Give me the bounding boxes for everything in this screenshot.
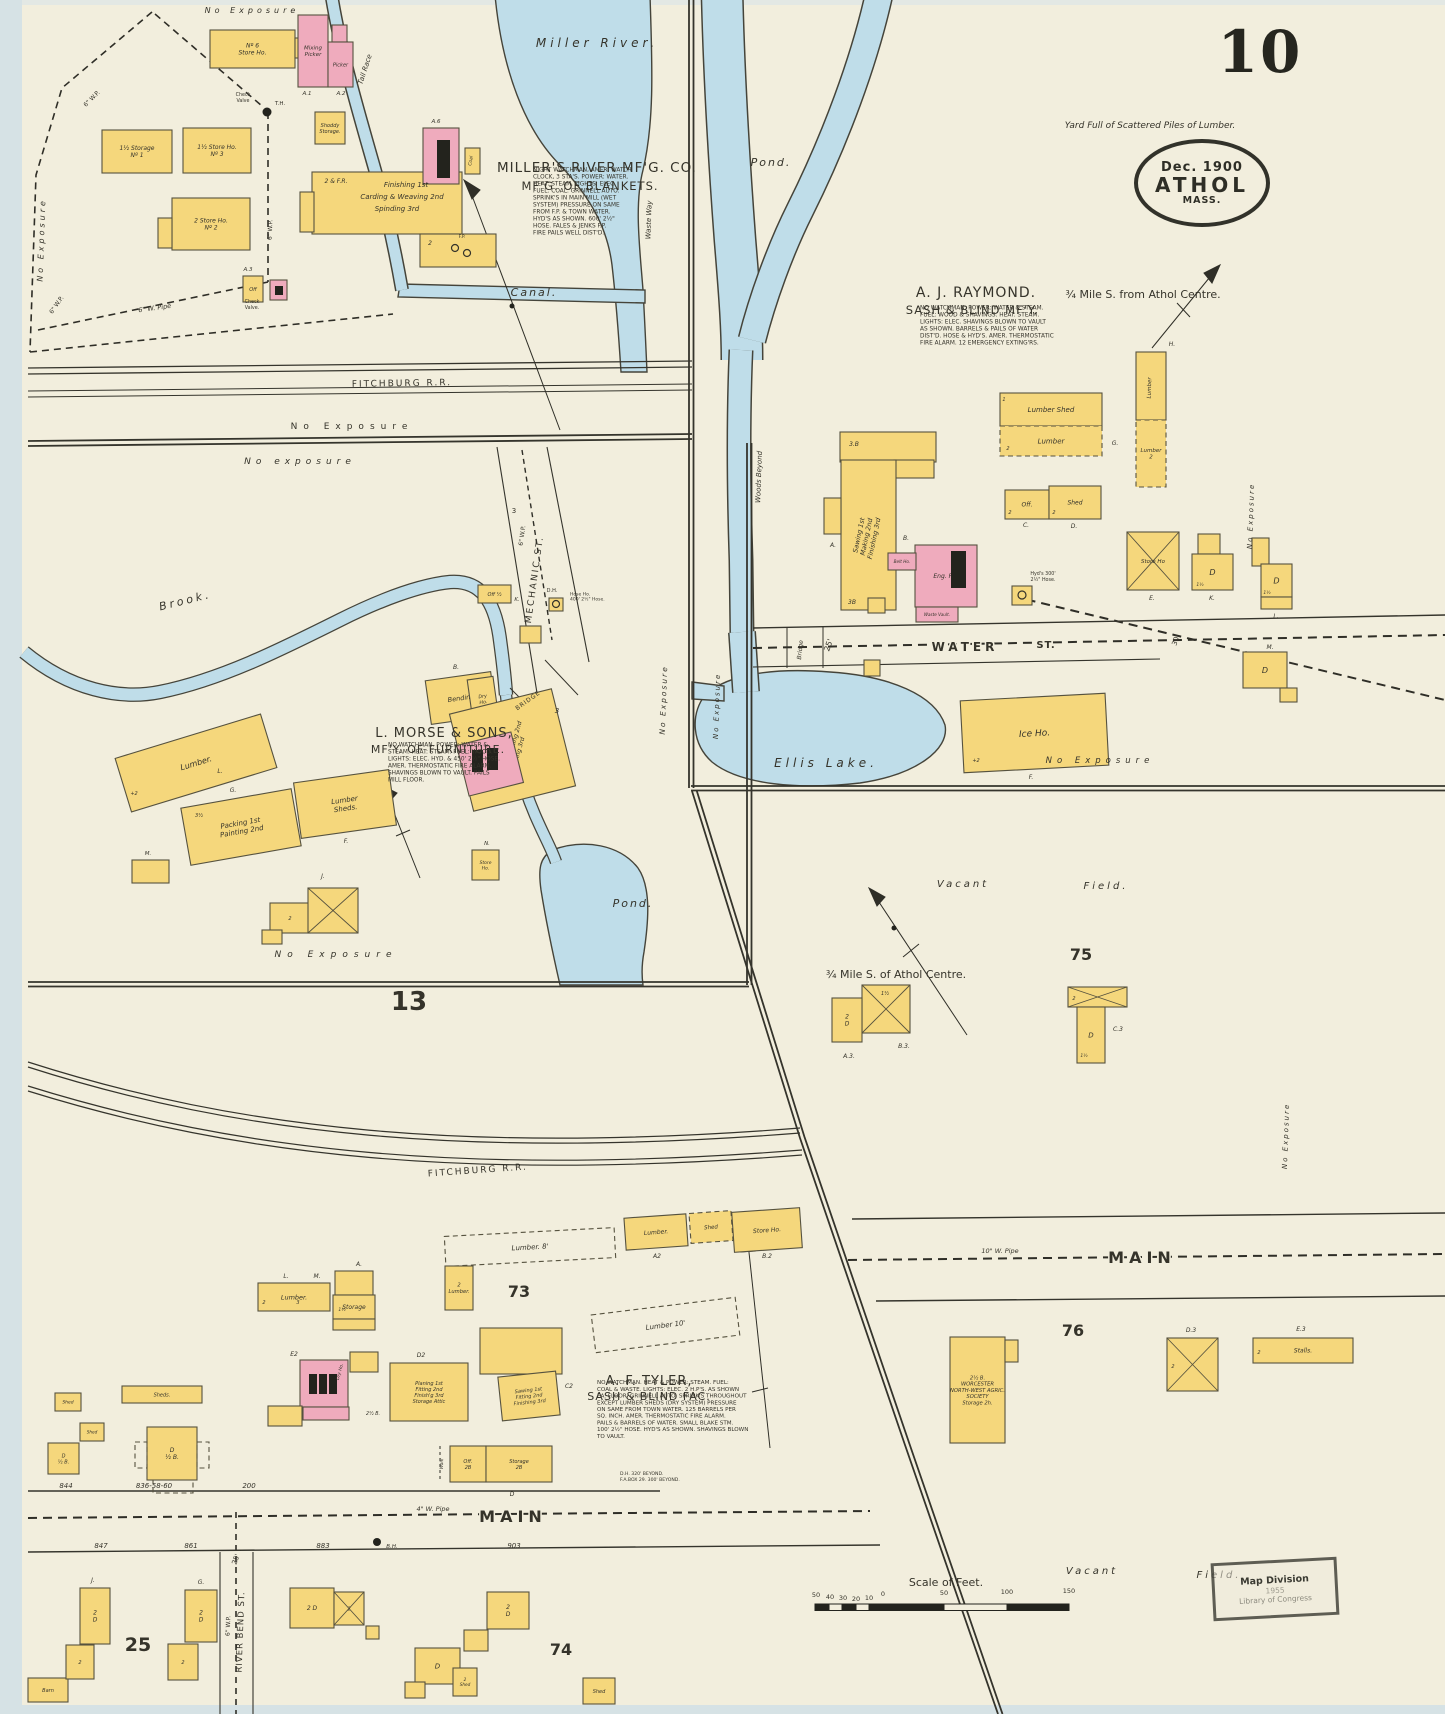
map-building <box>303 1407 349 1420</box>
map-label: 6" W.P. <box>48 295 65 316</box>
map-label: 13 <box>391 987 427 1017</box>
map-label: M. <box>145 851 152 857</box>
building-label: D <box>1209 568 1215 577</box>
scale-bar-segment <box>882 1604 944 1611</box>
utility-dot <box>892 926 897 931</box>
map-building: 2D <box>832 998 862 1042</box>
map-label: No Exposure <box>1046 756 1155 766</box>
map-building <box>268 1406 302 1426</box>
map-building: Storage2B <box>486 1446 552 1482</box>
map-label: 861 <box>184 1542 197 1550</box>
map-label: A.3 <box>242 267 253 273</box>
map-label: 2 <box>1052 510 1055 516</box>
map-label: WATER <box>932 640 999 654</box>
map-label: D. <box>1071 523 1078 530</box>
map-label: D.3 <box>1186 1327 1197 1334</box>
map-label: A.1 <box>301 91 311 97</box>
map-label: No exposure <box>244 457 356 467</box>
building-label: Storage <box>342 1304 366 1311</box>
map-building: Sheds. <box>122 1386 202 1403</box>
map-label: C. <box>1023 522 1029 529</box>
sheet-number: 10 <box>1205 18 1315 86</box>
river-west-branch <box>722 0 742 360</box>
river-east-branch <box>752 0 880 340</box>
map-label: 2 <box>1008 510 1011 516</box>
building-label: Barn <box>42 1688 54 1694</box>
map-label: M. <box>313 1273 320 1280</box>
map-label: G. <box>1112 440 1119 447</box>
map-building: 2 <box>66 1645 94 1679</box>
scale-of-feet: Scale of Feet.5040302010050100150 <box>812 1576 1075 1611</box>
map-label: A. <box>829 542 836 549</box>
building-label: Lumber. 8' <box>511 1242 548 1252</box>
map-label: 10" W. Pipe <box>981 1247 1018 1255</box>
building-interior-mark <box>951 551 966 588</box>
scale-tick: 150 <box>1063 1587 1075 1595</box>
map-label: CheckValve. <box>245 299 260 311</box>
map-label: Finishing 1st <box>384 181 429 189</box>
map-label: 76 <box>1062 1321 1084 1340</box>
utility-dot <box>510 304 515 309</box>
map-label: J. <box>320 873 325 880</box>
building-label: Off.2B <box>463 1459 472 1471</box>
map-building <box>1280 688 1297 702</box>
map-label: B. <box>903 535 909 542</box>
map-building <box>1005 1340 1018 1362</box>
building-label: Belt Ho. <box>894 559 911 564</box>
map-label: 25' <box>822 638 835 653</box>
map-building: 2 <box>168 1644 198 1680</box>
map-building <box>350 1352 378 1372</box>
map-label: Yard Full of Scattered Piles of Lumber. <box>1065 121 1235 131</box>
building-label: Shed <box>62 1400 73 1406</box>
map-building <box>1261 597 1292 609</box>
map-building <box>480 1328 562 1374</box>
map-building: 2Shed <box>453 1668 477 1696</box>
map-label: RIVER BEND ST. <box>235 1591 248 1673</box>
scale-bar-segment <box>829 1604 842 1611</box>
map-label: Carding & Weaving 2nd <box>360 193 444 201</box>
map-label: No Exposure <box>291 422 414 432</box>
map-label: L. <box>1273 613 1278 620</box>
map-building <box>333 1319 375 1330</box>
building-label: Planing 1stFitting 2ndFinish'g 3rdStorag… <box>413 1381 446 1405</box>
scale-tick: 40 <box>826 1593 834 1601</box>
map-label: Vacant <box>1066 1566 1118 1577</box>
map-label: B. <box>453 664 459 671</box>
map-label: Field. <box>1084 881 1129 892</box>
utility-dot <box>373 1538 381 1546</box>
map-label: 1½ <box>1196 581 1204 588</box>
map-label: Waste Way <box>644 200 653 240</box>
map-building: Lumber <box>1000 426 1102 456</box>
building-label: Picker <box>333 62 349 68</box>
map-building: Store Ho <box>1127 532 1179 590</box>
building-label: Off. <box>1022 502 1033 509</box>
building-label: Lumber <box>1038 437 1066 445</box>
map-label: E2 <box>290 1351 298 1358</box>
map-building: Sawing 1stFitting 2ndFinishing 3rd <box>498 1371 560 1421</box>
map-label: L. <box>283 1273 288 1280</box>
map-building: Picker <box>328 42 353 87</box>
map-label: J. <box>90 1577 95 1584</box>
building-label: 2 <box>347 1606 350 1612</box>
building-label: Shed <box>87 1429 98 1434</box>
map-building: 1½ Store Ho.Nº 3 <box>183 128 251 173</box>
map-building <box>868 598 885 613</box>
building-label: MixingPicker <box>304 46 323 59</box>
map-label: ¾ Mile S. of Athol Centre. <box>826 968 966 981</box>
map-building: Off ½ <box>478 585 511 603</box>
map-label: Miller River. <box>536 36 658 50</box>
map-label: Bridge <box>796 639 805 659</box>
map-building: D½ B. <box>147 1427 197 1480</box>
building-label: Lumber 10' <box>645 1319 686 1332</box>
map-label: Pond. <box>613 897 654 910</box>
map-label: No Exposure <box>1281 1103 1291 1170</box>
map-building: 2D <box>487 1592 529 1629</box>
scale-title: Scale of Feet. <box>909 1576 983 1589</box>
scale-tick: 10 <box>865 1594 873 1602</box>
stamp-city: ATHOL <box>1155 175 1249 195</box>
map-label: M. <box>1266 644 1273 651</box>
sanborn-map-page: 1½ StorageNº 11½ Store Ho.Nº 32 Store Ho… <box>0 0 1445 1714</box>
map-label: 2 <box>428 240 432 247</box>
building-label: Waste Vault. <box>924 612 950 617</box>
map-label: CheckValve <box>236 92 251 104</box>
map-building: Sawing 1stMaking 2ndFinishing 3rd <box>841 460 896 610</box>
map-label: Brook. <box>158 588 213 614</box>
map-label: 844 <box>59 1482 72 1490</box>
map-building <box>308 888 358 933</box>
map-building: Stalls. <box>1253 1338 1353 1363</box>
map-label: Pond. <box>751 156 792 169</box>
map-building <box>135 1442 147 1468</box>
map-label: Hose Ho.400' 2½" Hose. <box>570 591 605 602</box>
building-label: Shed <box>704 1224 719 1231</box>
scale-bar-segment <box>815 1604 829 1611</box>
map-label: F. <box>1029 774 1034 781</box>
map-building: Packing 1stPainting 2nd <box>181 789 301 866</box>
building-label: Shed <box>593 1689 606 1695</box>
scale-tick: 100 <box>1001 1588 1013 1596</box>
building-label: Lumber Shed <box>1028 406 1075 414</box>
map-label: 6" W.P. <box>82 89 101 108</box>
map-label: 3.B <box>849 441 859 448</box>
map-building: Storage <box>333 1295 375 1319</box>
map-label: 6" W.P. <box>267 220 275 241</box>
scale-tick: 50 <box>812 1591 820 1599</box>
map-building <box>262 930 282 944</box>
scale-tick: 0 <box>881 1590 885 1598</box>
map-label: 2 <box>262 1300 265 1306</box>
building-label: DryHo. <box>478 693 488 706</box>
map-label: N. <box>484 841 490 847</box>
map-label: 6" W. Pipe <box>138 302 172 315</box>
map-building: Lumber. 8' <box>444 1228 615 1267</box>
scale-bar-segment <box>869 1604 882 1611</box>
map-label: A. J. RAYMOND. <box>916 285 1036 301</box>
map-building <box>1198 534 1220 554</box>
map-label: B.2 <box>762 1253 772 1260</box>
map-label: No Exposure <box>205 6 300 15</box>
map-label: F.P. <box>459 234 466 240</box>
map-label: +2 <box>972 758 979 764</box>
map-label: MAIN <box>1108 1248 1176 1267</box>
map-label: E. <box>1149 595 1155 602</box>
map-building <box>197 1442 209 1468</box>
map-label: 75 <box>1070 945 1092 964</box>
map-building: Lumber. <box>258 1283 330 1311</box>
building-interior-mark <box>437 140 450 178</box>
map-building: Shed <box>583 1678 615 1704</box>
building-label: Ice Ho. <box>1019 728 1051 740</box>
map-building: 2 <box>270 903 310 933</box>
map-label: G. <box>230 787 237 794</box>
map-label: 2 <box>1257 1350 1260 1356</box>
map-label: 2 <box>1006 446 1009 452</box>
map-building: 2Lumber. <box>445 1266 473 1310</box>
map-building <box>332 25 347 42</box>
map-label: Tail Race <box>356 53 373 85</box>
map-label: 200 <box>242 1482 256 1490</box>
map-label: 25' <box>231 1553 242 1566</box>
building-label: Lumber <box>1147 377 1154 399</box>
map-building: Shed <box>689 1211 733 1244</box>
map-building <box>824 498 841 534</box>
map-label: L. <box>217 768 222 775</box>
map-building: 2 Store Ho.Nº 2 <box>172 198 250 250</box>
map-label: 6" W.P. <box>225 1616 233 1637</box>
map-building <box>1068 987 1127 1007</box>
map-label: F. <box>344 838 349 845</box>
utility-dot <box>263 108 272 117</box>
library-of-congress-stamp: Map Division 1955 Library of Congress <box>1211 1557 1340 1622</box>
scale-bar-segment <box>1007 1604 1069 1611</box>
map-label: C.3 <box>1113 1026 1123 1033</box>
map-label: 1½ <box>1080 1052 1088 1059</box>
building-label: D <box>1088 1031 1094 1039</box>
map-building <box>1167 1338 1218 1391</box>
map-label: 836-58-60 <box>136 1482 173 1490</box>
map-building: Lumber2 <box>1136 420 1166 487</box>
map-label: D.H. 320' BEYOND.F.A.BOX 29. 300' BEYOND… <box>620 1471 680 1483</box>
map-label: 3 <box>555 707 559 715</box>
map-label: 2½ B. <box>366 1410 380 1417</box>
map-label: D.H. <box>547 588 558 594</box>
map-building <box>366 1626 379 1639</box>
building-label: 2 <box>288 916 291 922</box>
map-label: Woods Beyond <box>754 450 764 503</box>
map-label: +2 <box>130 791 137 797</box>
scale-tick: 50 <box>940 1589 948 1597</box>
map-label: NO WATCHMAN. HEAT & POWER: STEAM. FUEL:C… <box>596 1380 748 1440</box>
map-building: 2D <box>80 1588 110 1644</box>
map-label: B.3. <box>898 1043 910 1050</box>
map-building: Belt Ho. <box>888 553 916 570</box>
map-label: Spinding 3rd <box>375 205 420 213</box>
map-label: A.3. <box>842 1053 855 1060</box>
map-label: E.3 <box>1296 1326 1306 1333</box>
map-building <box>864 660 880 676</box>
building-label: 2 <box>78 1660 81 1666</box>
map-building: MixingPicker <box>298 15 328 87</box>
map-building <box>405 1682 425 1698</box>
map-building <box>894 460 934 478</box>
map-building: StoreHo. <box>472 850 499 880</box>
map-building: 2D <box>185 1590 217 1642</box>
map-label: 1½ <box>1263 589 1271 596</box>
building-label: Stalls. <box>1294 1348 1312 1355</box>
map-building: Off.2B <box>450 1446 486 1482</box>
stamp-state: MASS. <box>1183 195 1222 206</box>
map-building: Shed <box>1049 486 1101 519</box>
map-building <box>520 626 541 643</box>
map-label: 883 <box>316 1542 329 1550</box>
library-stamp-line3: Library of Congress <box>1239 1593 1312 1606</box>
map-label: Ellis Lake. <box>774 756 878 770</box>
map-building <box>1252 538 1269 566</box>
map-building: Off <box>243 276 263 302</box>
building-interior-mark <box>309 1374 317 1394</box>
map-label: 74 <box>550 1640 572 1659</box>
pond-left <box>540 844 648 985</box>
map-building <box>132 860 169 883</box>
building-interior-mark <box>275 286 283 295</box>
brook <box>24 582 506 695</box>
building-label: 2 <box>181 1660 184 1666</box>
map-canvas: 1½ StorageNº 11½ Store Ho.Nº 32 Store Ho… <box>0 0 1445 1714</box>
map-label: No Exposure <box>658 665 669 735</box>
map-building: Shed <box>55 1393 81 1411</box>
map-building: Shed <box>80 1423 104 1441</box>
scale-bar-segment <box>842 1604 856 1611</box>
building-label: D <box>435 1662 441 1670</box>
map-building: D½ B. <box>48 1443 79 1474</box>
map-label: 847 <box>94 1542 108 1550</box>
map-label: D2 <box>417 1352 426 1359</box>
map-label: 3 <box>512 507 516 515</box>
map-building: Nº 6Store Ho. <box>210 30 295 68</box>
map-building: Lumber. <box>624 1214 688 1250</box>
map-building: 2 D <box>290 1588 334 1628</box>
map-label: H. <box>1169 341 1176 348</box>
map-building: Eng. Rm <box>915 545 977 607</box>
building-label: Lumber. <box>281 1293 307 1301</box>
map-label: Hyd's 300'2½" Hose. <box>1030 571 1055 583</box>
map-label: 25 <box>125 1634 151 1656</box>
map-label: 3 <box>296 1300 299 1306</box>
map-label: FITCHBURG R.R. <box>427 1163 528 1180</box>
scale-bar-segment <box>856 1604 869 1611</box>
map-building: D <box>1243 652 1287 688</box>
map-label: G. <box>198 1579 205 1586</box>
map-label: A. <box>355 1261 362 1268</box>
map-label: ST. <box>1036 640 1055 651</box>
map-label: T.H. <box>274 101 285 107</box>
building-label: Shed <box>1067 500 1082 507</box>
map-label: L. MORSE & SONS, <box>375 726 512 741</box>
map-label: No Exposure <box>36 198 48 282</box>
map-label: Canal. <box>511 286 558 299</box>
map-label: A.6 <box>430 119 441 125</box>
map-label: 2 <box>1072 996 1075 1002</box>
map-label: 73 <box>508 1282 530 1301</box>
map-label: D <box>510 1491 515 1498</box>
map-label: 6" W.P. <box>518 525 528 546</box>
athol-date-stamp: Dec. 1900 ATHOL MASS. <box>1134 139 1270 227</box>
map-label: No Exposure <box>275 950 398 960</box>
map-label: Vacant <box>937 879 989 890</box>
map-label: K. <box>1209 595 1215 602</box>
building-label: D <box>1273 576 1279 585</box>
map-label: 4" W. Pipe <box>416 1505 449 1513</box>
map-label: 1½ <box>881 990 889 997</box>
map-label: C2 <box>565 1383 573 1390</box>
buildings-layer: 1½ StorageNº 11½ Store Ho.Nº 32 Store Ho… <box>28 15 1353 1704</box>
map-label: NO WATCHMAN. POWER: WATER & STEAM.FUEL: … <box>920 306 1054 347</box>
building-label: Sheds. <box>154 1392 171 1398</box>
map-label: A2 <box>652 1253 661 1260</box>
map-building: Planing 1stFitting 2ndFinish'g 3rdStorag… <box>390 1363 468 1421</box>
map-label: ¾ Mile S. from Athol Centre. <box>1065 288 1220 301</box>
map-label: 1 <box>1002 397 1005 403</box>
map-building: 2 <box>334 1592 364 1625</box>
building-label: D <box>1262 666 1268 675</box>
scale-tick: 20 <box>852 1595 860 1603</box>
map-label: FITCHBURG R.R. <box>352 378 452 390</box>
map-building <box>1012 586 1032 605</box>
map-label: 2 & F.R. <box>325 178 348 185</box>
map-building: 2½ B.WORCESTERNORTH-WEST AGRIC.SOCIETYSt… <box>950 1337 1005 1443</box>
map-label: 3½ <box>195 812 203 819</box>
map-building: Off. <box>1005 490 1049 519</box>
map-building: Lumber <box>1136 352 1166 420</box>
building-interior-mark <box>319 1374 327 1394</box>
map-building: ShoddyStorage. <box>315 112 345 144</box>
map-building <box>464 1630 488 1651</box>
map-label: K. <box>514 597 520 603</box>
building-label: 2 D <box>307 1605 318 1612</box>
map-building: Waste Vault. <box>916 607 958 622</box>
map-label: 903 <box>507 1542 520 1550</box>
map-building: Lumber Shed <box>1000 393 1102 426</box>
map-building: Barn <box>28 1678 68 1702</box>
map-building <box>300 192 314 232</box>
map-label: MECHANIC ST. <box>524 535 546 624</box>
map-building <box>158 218 172 248</box>
scale-bar-segment <box>944 1604 1007 1611</box>
map-label: Walk <box>439 1458 445 1469</box>
building-label: ShoddyStorage. <box>319 123 340 135</box>
map-label: 1½ <box>338 1306 346 1313</box>
map-building: 1½ StorageNº 1 <box>102 130 172 173</box>
building-label: Store Ho <box>1141 559 1166 565</box>
map-label: A.2 <box>335 91 346 97</box>
building-label: Sawing 1stFitting 2ndFinishing 3rd <box>512 1386 547 1407</box>
map-label: 2 <box>1171 1364 1174 1370</box>
map-label: B.H. <box>386 1544 398 1550</box>
map-building: LumberSheds. <box>294 770 397 839</box>
map-label: 3B <box>848 599 856 606</box>
scale-tick: 30 <box>839 1594 847 1602</box>
map-label: MAIN <box>479 1507 547 1526</box>
map-building <box>335 1271 373 1295</box>
building-label: Off ½ <box>488 591 502 598</box>
map-building: Store Ho. <box>732 1208 803 1253</box>
map-building: Lumber 10' <box>591 1297 740 1352</box>
